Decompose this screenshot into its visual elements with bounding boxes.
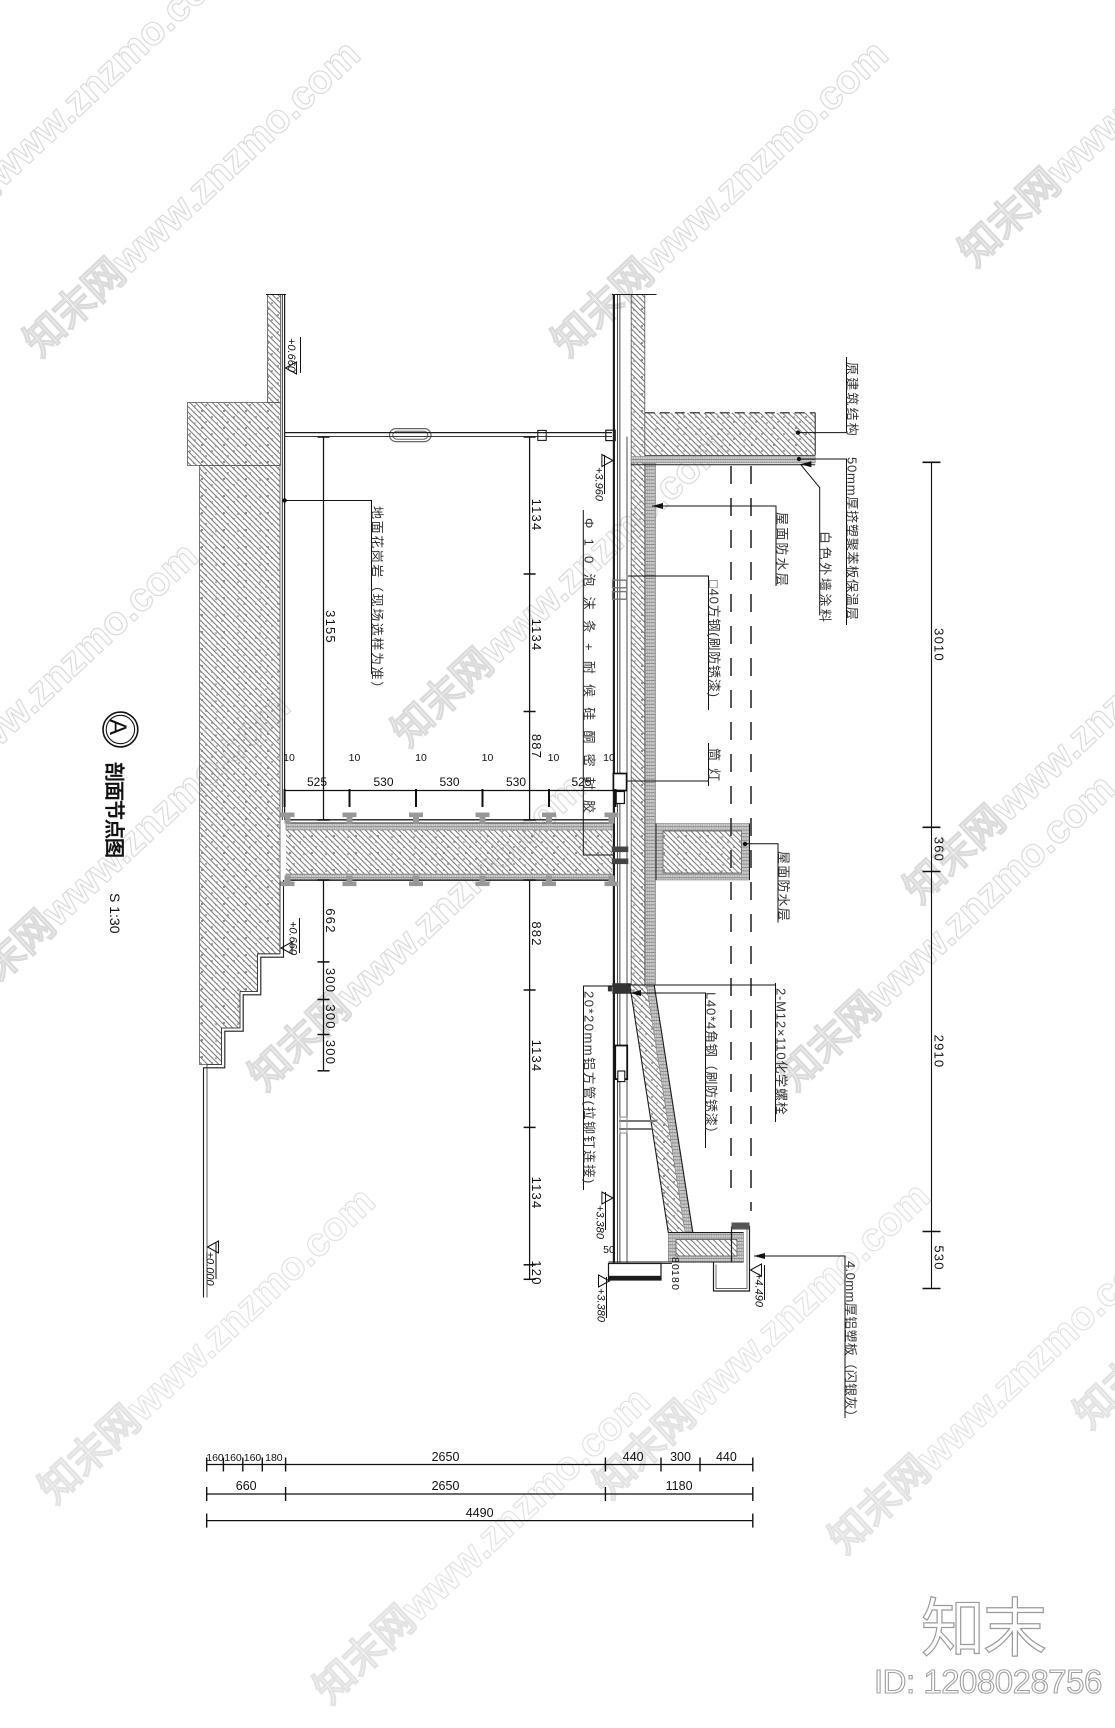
svg-text:知末网www.znzmo.com: 知末网www.znzmo.com — [951, 0, 1115, 275]
svg-text:知末网www.znzmo.com: 知末网www.znzmo.com — [306, 1379, 658, 1712]
svg-text:知末网www.znzmo.com: 知末网www.znzmo.com — [384, 422, 736, 755]
svg-text:1134: 1134 — [529, 499, 544, 532]
svg-text:剖面节点图: 剖面节点图 — [103, 762, 127, 857]
svg-text:50mm厚挤塑聚苯板保温层: 50mm厚挤塑聚苯板保温层 — [845, 457, 860, 621]
svg-text:530: 530 — [506, 775, 526, 789]
svg-text:+4.490: +4.490 — [753, 1273, 765, 1308]
svg-text:屋面防水层: 屋面防水层 — [776, 851, 791, 922]
svg-text:300: 300 — [323, 968, 338, 993]
svg-text:S 1:30: S 1:30 — [107, 893, 123, 934]
svg-text:300: 300 — [323, 1040, 338, 1065]
svg-text:原建筑结构: 原建筑结构 — [845, 362, 860, 438]
svg-text:530: 530 — [932, 1245, 947, 1270]
svg-text:360: 360 — [932, 837, 947, 862]
svg-text:+3.380: +3.380 — [595, 1288, 607, 1323]
svg-text:440: 440 — [623, 1450, 644, 1464]
svg-text:660: 660 — [236, 1479, 257, 1493]
svg-text:300: 300 — [670, 1450, 691, 1464]
svg-text:2910: 2910 — [932, 1035, 947, 1069]
svg-text:10: 10 — [548, 752, 560, 764]
svg-text:白色外墙涂料: 白色外墙涂料 — [818, 531, 833, 625]
svg-text:+0.660: +0.660 — [285, 338, 297, 373]
svg-text:10: 10 — [283, 752, 295, 764]
svg-text:525: 525 — [307, 775, 327, 789]
svg-text:知末: 知末 — [921, 1593, 1045, 1665]
svg-text:530: 530 — [373, 775, 393, 789]
svg-text:+3.380: +3.380 — [594, 1205, 606, 1240]
svg-text:440: 440 — [716, 1450, 737, 1464]
svg-text:2-M12×110化学螺栓: 2-M12×110化学螺栓 — [774, 988, 789, 1116]
svg-text:10: 10 — [603, 752, 615, 764]
svg-text:A: A — [104, 719, 131, 735]
svg-text:180: 180 — [265, 1452, 283, 1464]
svg-text:160: 160 — [206, 1452, 224, 1464]
svg-text:120: 120 — [529, 1260, 544, 1285]
svg-text:1134: 1134 — [529, 1177, 544, 1210]
svg-text:662: 662 — [323, 908, 338, 933]
svg-text:180: 180 — [669, 1270, 681, 1291]
svg-text:L40*4角钢（刷防锈漆）: L40*4角钢（刷防锈漆） — [704, 992, 719, 1140]
svg-text:300: 300 — [323, 1004, 338, 1029]
svg-text:160: 160 — [224, 1452, 242, 1464]
svg-text:+0.660: +0.660 — [287, 921, 299, 956]
svg-text:ID: 1208028756: ID: 1208028756 — [874, 1663, 1102, 1700]
svg-text:知末网www.znzmo.com: 知末网www.znzmo.com — [821, 1229, 1115, 1562]
svg-text:1180: 1180 — [666, 1479, 693, 1493]
svg-text:1134: 1134 — [529, 619, 544, 652]
svg-text:887: 887 — [529, 734, 544, 759]
svg-text:□40方钢(刷防锈漆): □40方钢(刷防锈漆) — [707, 580, 722, 698]
svg-text:4.0mm厚铝塑板（闪银灰）: 4.0mm厚铝塑板（闪银灰） — [843, 1261, 858, 1423]
svg-text:2650: 2650 — [432, 1450, 460, 1464]
svg-text:80: 80 — [669, 1257, 681, 1271]
svg-text:10: 10 — [482, 752, 494, 764]
svg-text:2650: 2650 — [432, 1479, 460, 1493]
svg-text:10: 10 — [349, 752, 361, 764]
svg-text:+3.960: +3.960 — [593, 467, 605, 502]
svg-text:50: 50 — [603, 1244, 615, 1256]
svg-text:1134: 1134 — [529, 1040, 544, 1073]
svg-text:882: 882 — [529, 921, 544, 946]
svg-text:4490: 4490 — [466, 1506, 494, 1520]
svg-text:地面花岗岩（现场选样为准）: 地面花岗岩（现场选样为准） — [370, 506, 385, 696]
svg-text:屋面防水层: 屋面防水层 — [775, 512, 790, 588]
svg-text:Φ10泡沫条+耐候硅酮密封胶: Φ10泡沫条+耐候硅酮密封胶 — [582, 518, 597, 823]
svg-text:20*20mm铝方管(拉铆钉连接): 20*20mm铝方管(拉铆钉连接) — [582, 991, 597, 1185]
svg-text:±0.000: ±0.000 — [204, 1252, 216, 1286]
svg-text:3155: 3155 — [323, 610, 338, 644]
svg-text:10: 10 — [415, 752, 427, 764]
svg-text:3010: 3010 — [932, 628, 947, 662]
svg-text:530: 530 — [439, 775, 459, 789]
svg-text:160: 160 — [244, 1452, 262, 1464]
svg-text:筒灯: 筒灯 — [707, 748, 722, 788]
svg-text:知末网www.znzmo.com: 知末网www.znzmo.com — [544, 32, 896, 365]
